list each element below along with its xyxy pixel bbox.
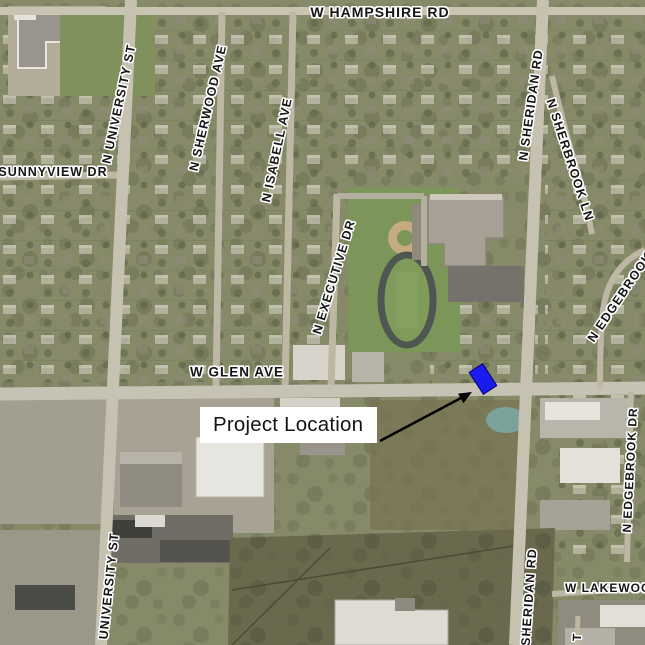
running-track xyxy=(381,255,433,345)
road-sunnyview xyxy=(0,175,118,177)
school-parking-lot xyxy=(448,266,524,302)
project-location-label: Project Location xyxy=(213,413,363,437)
map-canvas xyxy=(0,0,645,645)
commercial-bottom-right xyxy=(558,600,645,645)
big-store-roof xyxy=(196,437,264,497)
project-location-box: Project Location xyxy=(200,407,377,443)
map-viewport: W HAMPSHIRE RDN UNIVERSITY STN SHERWOOD … xyxy=(0,0,645,645)
road-edgebrook xyxy=(627,392,631,562)
road-glen xyxy=(0,388,645,394)
